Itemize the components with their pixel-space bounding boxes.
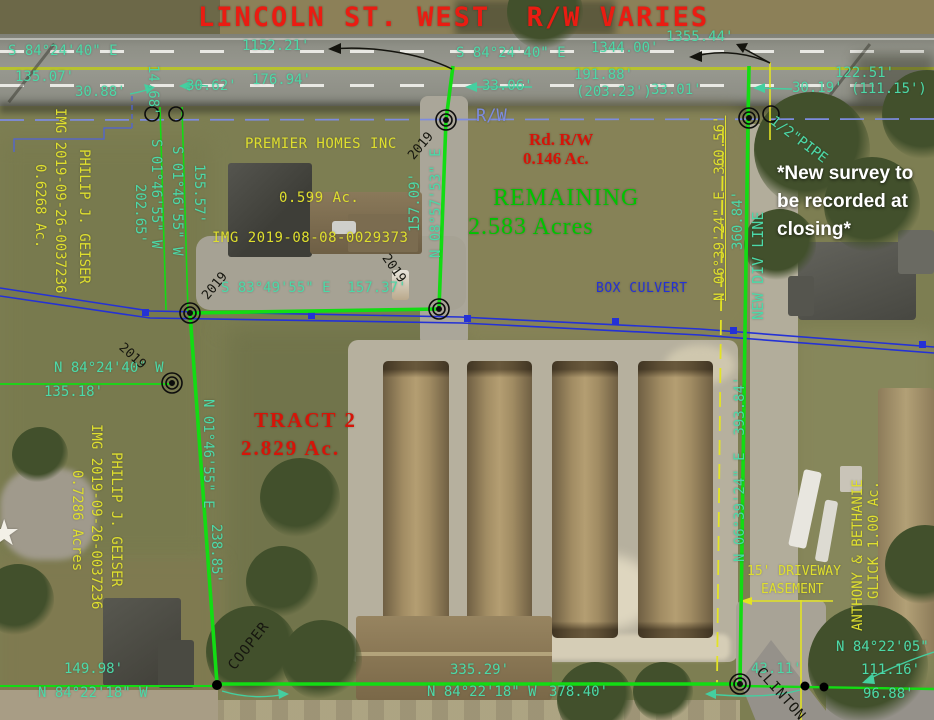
aerial-survey-plat: LINCOLN ST. WEST R/W VARIESS 84°24'40" E…: [0, 0, 934, 720]
dim-176-94: 176.94': [252, 73, 311, 89]
bearing-n8422e: N 84°22'05": [836, 640, 929, 656]
dim-157-09: 157.09': [408, 173, 424, 232]
bearing-top-left: S 84°24'40" E: [8, 44, 118, 60]
bearing-n0639-360: N 06°39'24" E 360.56': [713, 116, 729, 301]
storage-barn-1: [383, 361, 449, 638]
rw-label: R/W: [476, 107, 507, 126]
bearing-s0146-outer: S 01°46'55" W: [147, 139, 163, 249]
premier-area: 0.599 Ac.: [279, 191, 359, 207]
bearing-n8424w: N 84°24'40" W: [54, 361, 164, 377]
bearing-s0146-inner: S 01°46'55" W: [168, 146, 184, 256]
note-line-1: *New survey to: [777, 163, 913, 185]
rd-rw-title: Rd. R/W: [529, 130, 593, 149]
remaining-area: 2.583 Acres: [468, 214, 594, 241]
storage-barn-4: [638, 361, 713, 638]
geiser1-name: PHILIP J. GEISER: [75, 149, 91, 284]
bottom-left-house-ext: [158, 640, 194, 688]
geiser1-img: IMG 2019-09-26-0037236: [51, 108, 67, 293]
dim-135-18: 135.18': [44, 385, 103, 401]
dim-30-88: 30.88': [75, 85, 126, 101]
premier-name: PREMIER HOMES INC: [245, 137, 397, 153]
dim-1355-44: 1355.44': [666, 30, 733, 46]
dim-1152-21: 1152.21': [242, 39, 309, 55]
geiser2-area: 0.7286 Acres: [68, 470, 84, 571]
easement-line-1: 15' DRIVEWAY: [747, 565, 841, 580]
road-edge-line: [0, 38, 934, 40]
dim-111-15: (111.15'): [851, 82, 927, 98]
premier-img: IMG 2019-08-08-0029373: [212, 231, 408, 247]
dim-33-06: 33.06': [482, 79, 533, 95]
note-line-2: be recorded at: [777, 191, 908, 213]
bearing-n8422w-mid: N 84°22'18" W: [427, 685, 537, 701]
dim-122-51: 122.51': [835, 66, 894, 82]
dim-30-62: 30.62': [186, 79, 237, 95]
remaining-title: REMAINING: [493, 185, 639, 212]
tract2-area: 2.829 Ac.: [241, 437, 340, 461]
geiser2-img: IMG 2019-09-26-0037236: [87, 424, 103, 609]
bearing-s8349: S 83°49'55" E 157.37': [221, 281, 406, 297]
dim-1344-00: 1344.00': [591, 41, 658, 57]
bearing-n0857: N 08°57'53" E: [429, 148, 445, 258]
storage-barn-2: [467, 361, 532, 638]
dim-96-88: 96.88': [863, 687, 914, 703]
dim-378-40: 378.40': [549, 685, 608, 701]
dim-14-68: 14.68': [144, 65, 160, 116]
dim-202-65: 202.65': [131, 184, 147, 243]
dim-135-07: 135.07': [15, 70, 74, 86]
street-title: LINCOLN ST. WEST R/W VARIES: [198, 3, 709, 33]
new-div-line-label: NEW DIV LINE: [750, 212, 767, 320]
glick-name-2: GLICK 1.00 Ac.: [867, 481, 883, 599]
dim-33-01: 33.01': [651, 83, 702, 99]
storage-barn-3: [552, 361, 618, 638]
bearing-top-mid: S 84°24'40" E: [456, 46, 566, 62]
bearing-n0146e: N 01°46'55" E: [199, 399, 215, 509]
tract2-title: TRACT 2: [254, 409, 357, 433]
dim-111-16: 111.16': [861, 663, 920, 679]
bearing-n0639-393: N 06°39'24" E 393.84': [733, 377, 749, 562]
dim-191-88: 191.88': [574, 68, 633, 84]
dim-203-23: (203.23'): [576, 85, 652, 101]
road-centerline-yellow: [0, 67, 934, 70]
dim-238-85: 238.85': [207, 524, 223, 583]
bottom-mid-ridge: [356, 652, 552, 656]
dim-155-57: 155.57': [190, 164, 206, 223]
right-house-wing: [788, 276, 814, 316]
glick-name-1: ANTHONY & BETHANIE: [851, 479, 867, 631]
easement-line-2: EASEMENT: [761, 583, 824, 598]
geiser1-area: 0.6268 Ac.: [31, 164, 47, 248]
geiser2-name: PHILIP J. GEISER: [107, 452, 123, 587]
box-culvert-label: BOX CULVERT: [596, 282, 688, 297]
ground-top-dark: [0, 0, 220, 34]
dim-335-29: 335.29': [450, 663, 509, 679]
note-line-3: closing*: [777, 219, 851, 241]
rd-rw-area: 0.146 Ac.: [523, 149, 589, 168]
dim-360-84: 360.84': [731, 191, 747, 250]
bearing-n8422w-left: N 84°22'18" W: [38, 686, 148, 702]
dim-30-19: 30.19': [792, 81, 843, 97]
dim-149-98: 149.98': [64, 662, 123, 678]
star-symbol: ★: [0, 514, 20, 554]
